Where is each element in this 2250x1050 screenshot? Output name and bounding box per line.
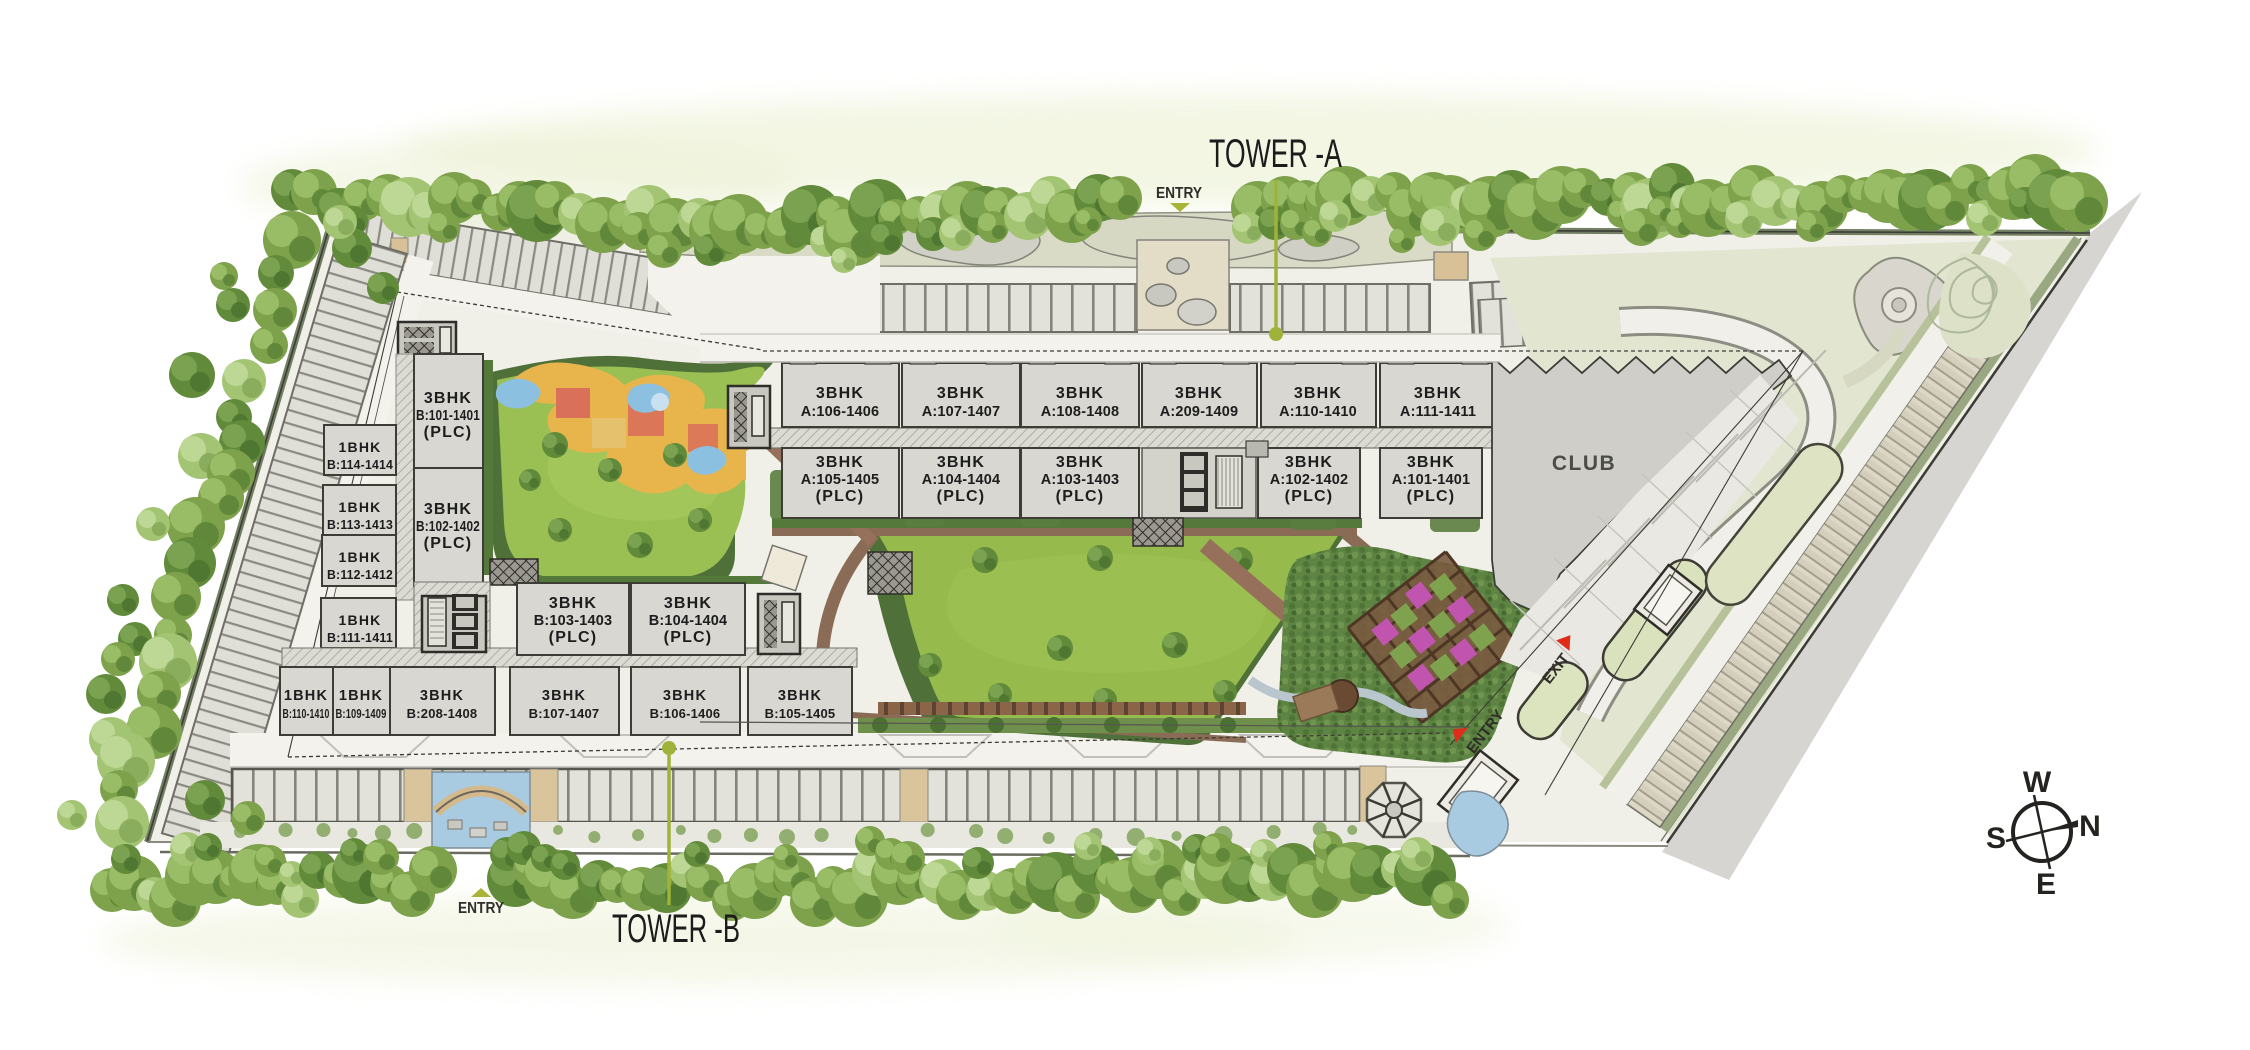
svg-text:B:112-1412: B:112-1412 — [327, 568, 393, 582]
svg-text:B:105-1405: B:105-1405 — [765, 706, 836, 721]
svg-text:1BHK: 1BHK — [339, 499, 382, 515]
svg-text:1BHK: 1BHK — [284, 688, 328, 704]
svg-text:(PLC): (PLC) — [549, 629, 598, 646]
svg-text:3BHK: 3BHK — [664, 595, 712, 612]
svg-text:B:114-1414: B:114-1414 — [327, 458, 393, 472]
svg-text:3BHK: 3BHK — [424, 501, 472, 518]
svg-text:(PLC): (PLC) — [1056, 488, 1105, 505]
svg-text:(PLC): (PLC) — [424, 535, 473, 552]
svg-text:B:110-1410: B:110-1410 — [283, 706, 330, 721]
svg-text:A:104-1404: A:104-1404 — [922, 472, 1001, 488]
svg-text:A:108-1408: A:108-1408 — [1041, 404, 1120, 420]
svg-text:(PLC): (PLC) — [816, 488, 865, 505]
svg-text:(PLC): (PLC) — [1285, 488, 1334, 505]
svg-text:3BHK: 3BHK — [424, 390, 472, 407]
svg-text:CLUB: CLUB — [1552, 452, 1616, 475]
svg-text:3BHK: 3BHK — [1285, 454, 1333, 471]
svg-text:3BHK: 3BHK — [1056, 454, 1104, 471]
svg-text:(PLC): (PLC) — [664, 629, 713, 646]
svg-text:3BHK: 3BHK — [1407, 454, 1455, 471]
svg-text:3BHK: 3BHK — [937, 385, 985, 402]
svg-text:A:105-1405: A:105-1405 — [801, 472, 880, 488]
svg-text:A:110-1410: A:110-1410 — [1279, 404, 1357, 420]
svg-text:B:101-1401: B:101-1401 — [416, 408, 480, 424]
svg-text:N: N — [2079, 810, 2101, 843]
svg-text:A:111-1411: A:111-1411 — [1400, 404, 1476, 420]
svg-text:3BHK: 3BHK — [663, 688, 707, 704]
svg-text:A:103-1403: A:103-1403 — [1041, 472, 1120, 488]
svg-text:A:102-1402: A:102-1402 — [1270, 472, 1349, 488]
svg-text:(PLC): (PLC) — [937, 488, 986, 505]
svg-text:3BHK: 3BHK — [1056, 385, 1104, 402]
svg-text:B:102-1402: B:102-1402 — [416, 519, 480, 535]
svg-text:W: W — [2023, 766, 2052, 799]
svg-text:A:101-1401: A:101-1401 — [1392, 472, 1471, 488]
svg-text:B:106-1406: B:106-1406 — [650, 706, 721, 721]
svg-text:B:103-1403: B:103-1403 — [534, 613, 613, 629]
svg-text:3BHK: 3BHK — [816, 385, 864, 402]
svg-text:3BHK: 3BHK — [816, 454, 864, 471]
svg-text:B:208-1408: B:208-1408 — [407, 706, 478, 721]
svg-text:(PLC): (PLC) — [1407, 488, 1456, 505]
svg-text:3BHK: 3BHK — [542, 688, 586, 704]
svg-text:B:113-1413: B:113-1413 — [327, 518, 393, 532]
svg-text:1BHK: 1BHK — [339, 439, 382, 455]
svg-text:B:107-1407: B:107-1407 — [529, 706, 600, 721]
svg-text:1BHK: 1BHK — [339, 688, 383, 704]
svg-text:1BHK: 1BHK — [339, 549, 382, 565]
svg-text:3BHK: 3BHK — [937, 454, 985, 471]
svg-text:3BHK: 3BHK — [1294, 385, 1342, 402]
svg-text:3BHK: 3BHK — [1414, 385, 1462, 402]
svg-text:ENTRY: ENTRY — [458, 900, 504, 917]
svg-text:TOWER -A: TOWER -A — [1209, 132, 1342, 176]
svg-text:A:209-1409: A:209-1409 — [1160, 404, 1239, 420]
svg-text:TOWER -B: TOWER -B — [612, 907, 740, 951]
svg-text:B:111-1411: B:111-1411 — [327, 631, 393, 645]
svg-text:B:109-1409: B:109-1409 — [336, 706, 387, 721]
svg-text:3BHK: 3BHK — [1175, 385, 1223, 402]
svg-text:S: S — [1986, 822, 2006, 855]
svg-text:1BHK: 1BHK — [339, 612, 382, 628]
svg-text:E: E — [2036, 868, 2056, 901]
svg-text:3BHK: 3BHK — [778, 688, 822, 704]
svg-text:(PLC): (PLC) — [424, 424, 473, 441]
svg-text:3BHK: 3BHK — [549, 595, 597, 612]
svg-text:ENTRY: ENTRY — [1156, 185, 1202, 202]
svg-text:A:107-1407: A:107-1407 — [922, 404, 1001, 420]
svg-text:A:106-1406: A:106-1406 — [801, 404, 880, 420]
svg-text:3BHK: 3BHK — [420, 688, 464, 704]
svg-text:B:104-1404: B:104-1404 — [649, 613, 728, 629]
